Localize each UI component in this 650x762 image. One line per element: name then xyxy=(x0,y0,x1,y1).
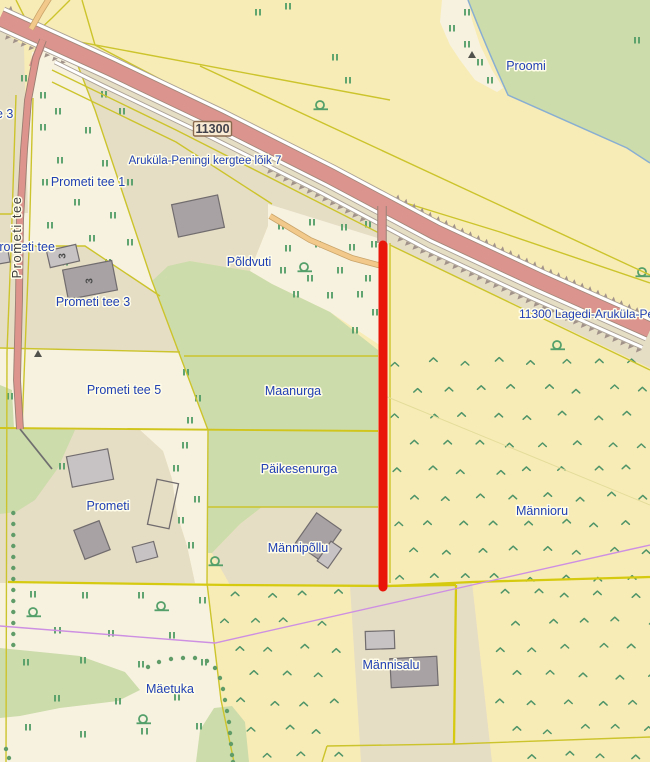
svg-text:Prometi tee 5: Prometi tee 5 xyxy=(87,383,161,397)
svg-text:Prometi tee: Prometi tee xyxy=(9,196,24,279)
svg-text:Männisalu: Männisalu xyxy=(363,658,420,672)
svg-text:Männipõllu: Männipõllu xyxy=(268,541,329,555)
svg-text:Männioru: Männioru xyxy=(516,504,568,518)
svg-text:Aruküla-Peningi kergtee lõik 7: Aruküla-Peningi kergtee lõik 7 xyxy=(129,155,282,167)
svg-text:Põldvuti: Põldvuti xyxy=(227,255,271,269)
svg-text:Prometi tee 1: Prometi tee 1 xyxy=(51,175,125,189)
svg-text:Prometi: Prometi xyxy=(86,499,129,513)
svg-text:Prometi tee 3: Prometi tee 3 xyxy=(0,107,13,121)
svg-text:3: 3 xyxy=(58,253,69,259)
svg-text:Prometi tee 3: Prometi tee 3 xyxy=(56,295,130,309)
svg-text:11300 Lagedi-Aruküla-Peningi: 11300 Lagedi-Aruküla-Peningi xyxy=(519,307,650,321)
svg-text:Mäetuka: Mäetuka xyxy=(146,682,194,696)
svg-text:3: 3 xyxy=(85,278,96,284)
svg-text:11300: 11300 xyxy=(195,122,229,136)
svg-text:Päikesenurga: Päikesenurga xyxy=(261,462,337,476)
svg-text:Maanurga: Maanurga xyxy=(265,384,321,398)
svg-text:Proomi: Proomi xyxy=(506,59,546,73)
